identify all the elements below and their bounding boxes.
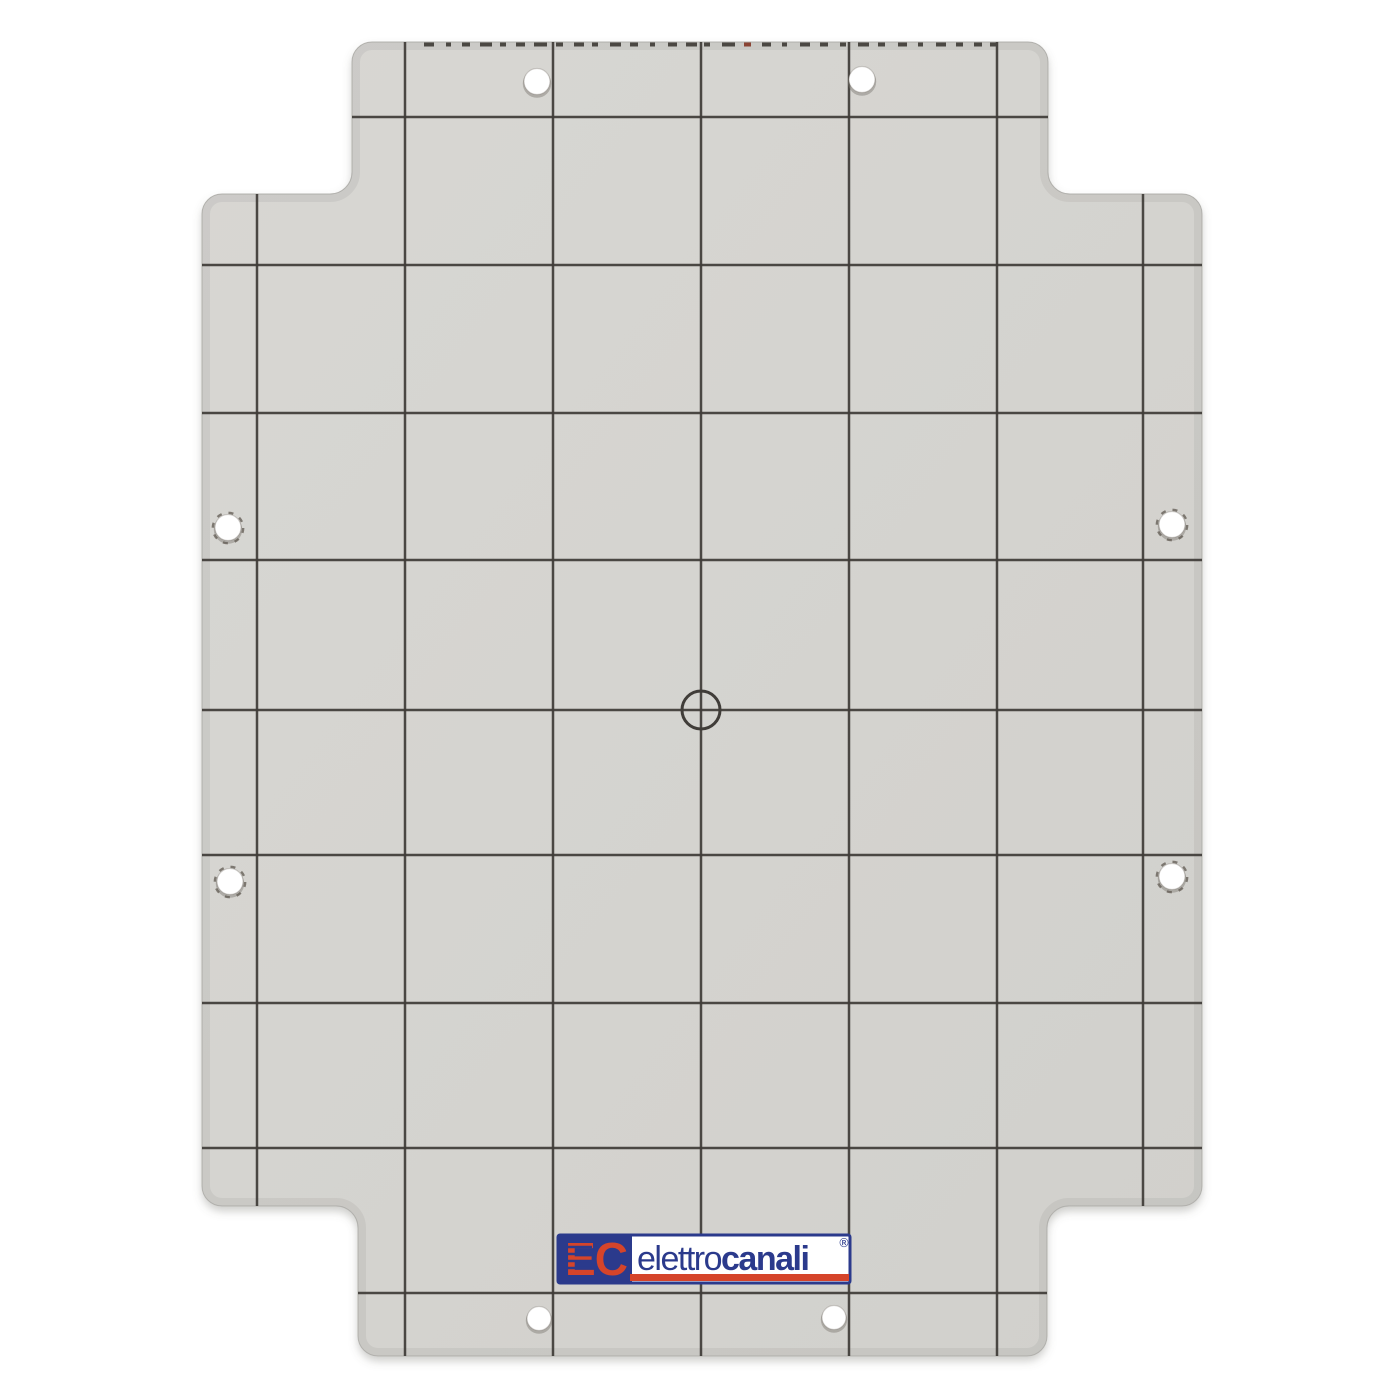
hole-top-right bbox=[848, 67, 876, 96]
edge-print-mark bbox=[534, 43, 547, 47]
edge-print-mark bbox=[500, 43, 506, 47]
logo-monogram: EC bbox=[565, 1233, 627, 1285]
edge-print-mark bbox=[820, 43, 828, 47]
brand-logo: EC elettrocanali ® bbox=[558, 1233, 850, 1285]
hole-bottom-right bbox=[821, 1306, 847, 1333]
edge-print-mark bbox=[722, 43, 735, 47]
product-photo-stage: EC elettrocanali ® bbox=[0, 0, 1400, 1400]
edge-print-mark bbox=[878, 43, 885, 47]
hole-top-left bbox=[523, 69, 551, 98]
edge-print-mark bbox=[556, 43, 563, 47]
edge-print-mark bbox=[516, 43, 525, 47]
logo-underline-bar bbox=[630, 1274, 849, 1281]
hole-bottom-left bbox=[526, 1307, 552, 1334]
edge-print-mark bbox=[446, 43, 451, 47]
edge-print-mark bbox=[918, 43, 923, 47]
edge-print-mark bbox=[630, 43, 638, 47]
mounting-plate-image: EC elettrocanali ® bbox=[0, 0, 1400, 1400]
edge-print-mark bbox=[704, 43, 710, 47]
edge-print-mark bbox=[480, 43, 492, 47]
edge-print-mark bbox=[840, 43, 846, 47]
registered-trademark-icon: ® bbox=[838, 1236, 850, 1250]
edge-print-mark bbox=[956, 43, 963, 47]
edge-print-mark bbox=[782, 43, 787, 47]
edge-print-mark bbox=[800, 43, 810, 47]
edge-print-mark bbox=[990, 43, 996, 47]
edge-print-mark bbox=[424, 43, 434, 47]
edge-print-mark bbox=[974, 43, 982, 47]
edge-print-mark bbox=[592, 43, 598, 47]
edge-print-mark bbox=[762, 43, 771, 47]
edge-print-mark bbox=[462, 43, 470, 47]
edge-print-mark bbox=[936, 43, 946, 47]
edge-print-mark bbox=[858, 43, 869, 47]
edge-print-mark bbox=[898, 43, 907, 47]
logo-wordmark-regular: elettro bbox=[637, 1240, 722, 1278]
logo-wordmark-bold: canali bbox=[721, 1240, 808, 1278]
edge-print-mark bbox=[668, 43, 677, 47]
edge-print-mark bbox=[610, 43, 621, 47]
edge-print-mark bbox=[744, 43, 751, 47]
edge-print-mark bbox=[574, 43, 584, 47]
logo-wordmark: elettrocanali bbox=[637, 1240, 808, 1278]
edge-print-mark bbox=[650, 43, 655, 47]
edge-print-mark bbox=[686, 43, 697, 47]
